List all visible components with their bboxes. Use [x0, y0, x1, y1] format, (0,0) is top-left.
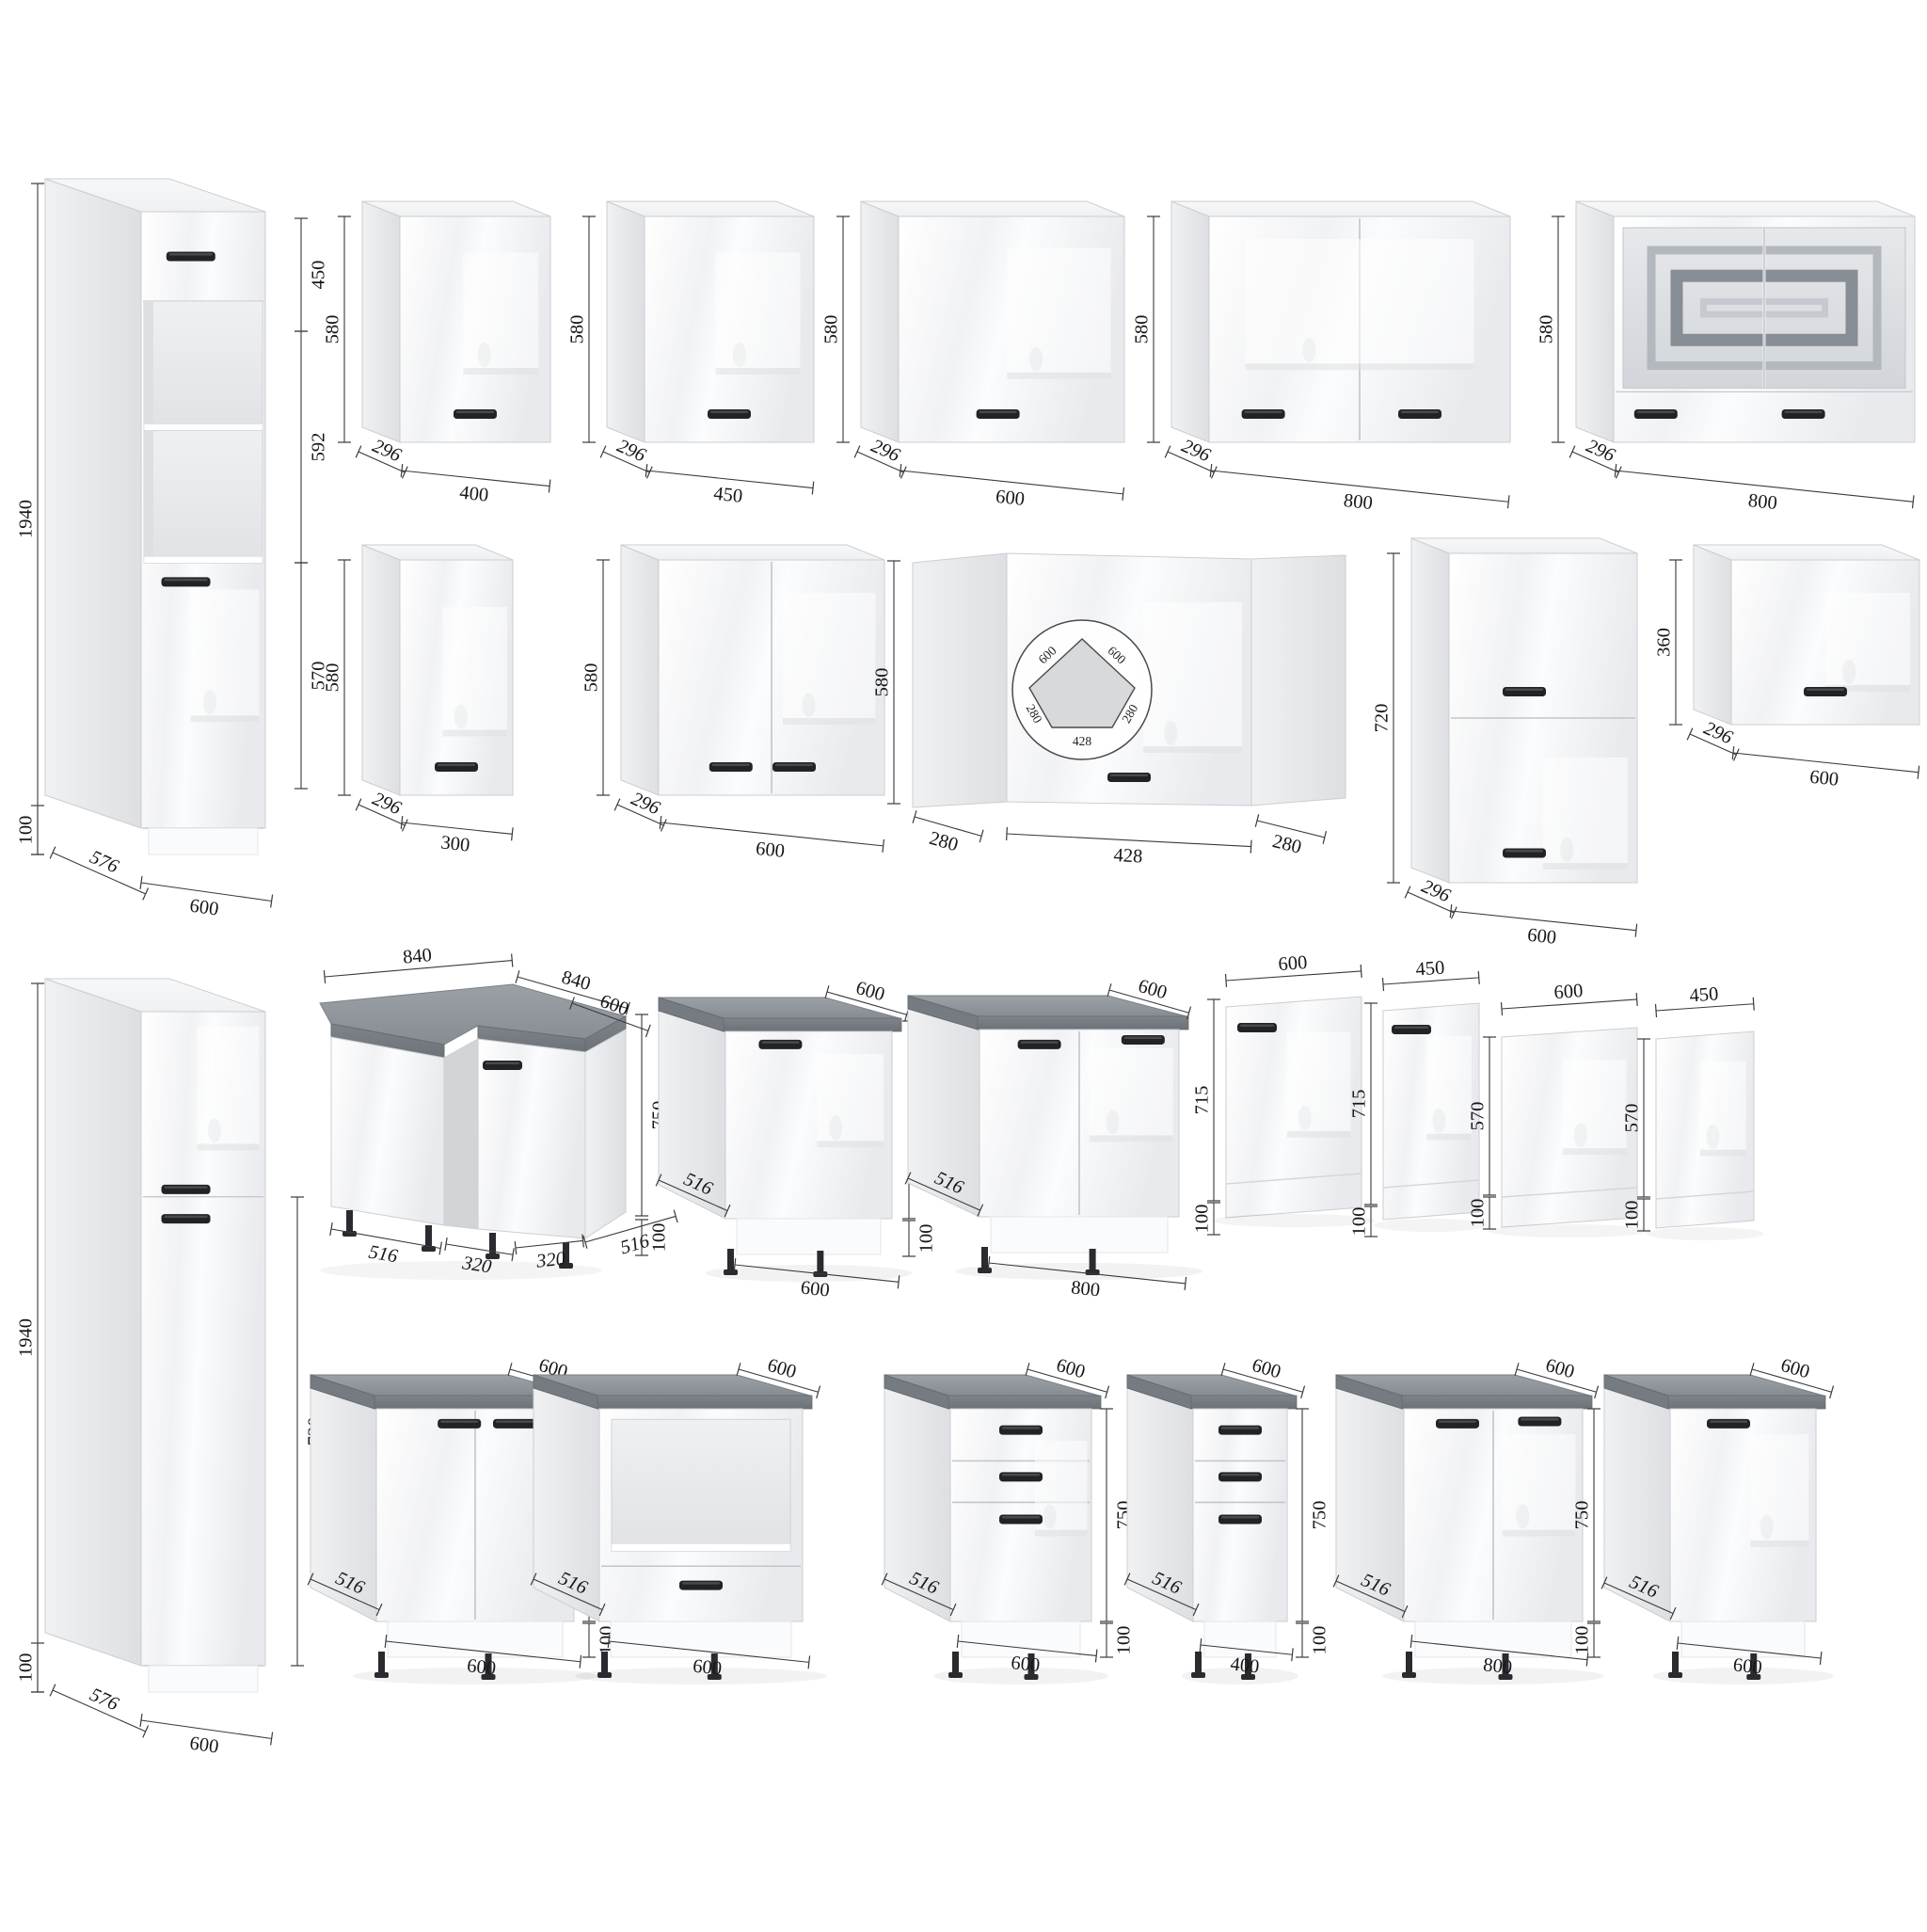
dimension: 576 [50, 1669, 154, 1737]
base-cabinet-800-two-door: 600516800 [1333, 1348, 1604, 1686]
open-niche [144, 301, 263, 431]
dimension: 580 [323, 560, 351, 795]
window-reflection [1035, 1441, 1088, 1537]
adjustable-leg [346, 1210, 353, 1233]
dimension-label: 570 [1622, 1104, 1643, 1133]
plan-dimension-label: 428 [1073, 734, 1092, 748]
top-face [1576, 201, 1915, 216]
dimension: 600 [1730, 746, 1919, 799]
dimension-label: 580 [1132, 315, 1153, 344]
adjustable-leg [425, 1225, 432, 1248]
dimension-label: 100 [1114, 1626, 1135, 1655]
side-face [1251, 555, 1346, 806]
dimension-label: 600 [466, 1655, 497, 1679]
dimension-label: 592 [309, 433, 329, 462]
countertop-edge [978, 1016, 1188, 1030]
wall-cabinet-600-two-door: 580296600 [581, 545, 884, 872]
plinth [1681, 1621, 1805, 1657]
wall-cabinet-600: 580296600 [821, 201, 1124, 520]
top-face [1694, 545, 1919, 560]
dimension-label: 100 [1572, 1626, 1593, 1655]
side-face [45, 179, 141, 828]
dimension: 280 [1250, 814, 1326, 863]
side-face [861, 201, 899, 442]
dimension-label: 516 [618, 1231, 652, 1259]
dimension-label: 400 [458, 483, 489, 506]
dimension: 450 [295, 218, 329, 331]
dimension-label: 715 [1192, 1086, 1213, 1115]
dimension-label: 715 [1349, 1090, 1370, 1119]
cabinet-catalog-diagram: 1940450592570100576600580296400580296450… [0, 0, 1927, 1927]
dimension-label: 600 [995, 487, 1026, 510]
dimension-label: 580 [821, 315, 842, 344]
window-reflection [1245, 239, 1473, 370]
window-reflection [1287, 1032, 1351, 1138]
dimension: 750 [1296, 1409, 1330, 1621]
window-reflection [1143, 602, 1242, 753]
dimension: 600 [658, 816, 884, 872]
wall-cabinet-450: 580296450 [567, 201, 814, 514]
dimension: 592 [295, 331, 329, 563]
window-reflection [1007, 248, 1110, 379]
dimension-label: 576 [87, 847, 122, 878]
open-niche [144, 431, 263, 564]
dimension-label: 450 [309, 261, 329, 290]
side-face [913, 553, 1007, 807]
dimension-label: 600 [188, 1733, 220, 1758]
tall-oven-housing-600: 1940450592570100576600 [16, 179, 329, 927]
dimension-label: 1940 [16, 1318, 37, 1357]
dimension-label: 600 [800, 1278, 831, 1301]
dimension-label: 428 [1113, 845, 1143, 868]
window-reflection [1543, 758, 1628, 870]
side-face [1576, 201, 1614, 442]
dimension-label: 450 [712, 484, 743, 507]
plinth [991, 1217, 1168, 1253]
dimension: 576 [50, 832, 154, 900]
dimension-label: 800 [1343, 490, 1374, 514]
dimension: 840 [323, 938, 513, 983]
dimension: 800 [1208, 464, 1509, 528]
dimension: 400 [399, 464, 550, 512]
adjustable-leg [1090, 1249, 1096, 1271]
dimension-label: 600 [1526, 925, 1557, 949]
base-cabinet-600-one-door-r3: 600516600750100 [656, 970, 937, 1308]
wall-cabinet-300: 580296300 [323, 545, 513, 860]
dimension-label: 840 [402, 945, 433, 968]
dimension: 600 [1224, 949, 1362, 987]
countertop-edge [948, 1396, 1101, 1409]
plinth [149, 828, 258, 854]
dimension-label: 580 [323, 663, 343, 693]
dimension-label: 100 [16, 816, 37, 845]
dimension-label: 300 [439, 833, 470, 856]
dimension-label: 600 [188, 896, 220, 920]
dimension-label: 750 [1572, 1501, 1593, 1530]
wall-cabinet-600-360: 360296600 [1654, 545, 1919, 799]
window-reflection [783, 593, 875, 725]
window-reflection [1750, 1434, 1808, 1547]
dimension-label: 580 [567, 315, 588, 344]
dimension: 600 [137, 1714, 273, 1764]
plan-view-inset: 600600280428280 [1012, 620, 1152, 759]
dimension-label: 280 [1270, 831, 1303, 858]
top-face [607, 201, 814, 216]
dimension: 100 [1296, 1623, 1330, 1657]
dimension: 1940 [16, 983, 44, 1692]
wall-cabinet-600-720: 720296600 [1372, 538, 1637, 957]
dimension: 280 [907, 810, 983, 861]
window-reflection [817, 1054, 884, 1148]
dimension: 100 [902, 1221, 937, 1256]
adjustable-leg [817, 1251, 823, 1273]
plinth [737, 1219, 881, 1254]
dimension: 428 [1006, 827, 1251, 873]
dimension: 450 [1381, 955, 1479, 991]
countertop-edge [1402, 1396, 1592, 1409]
side-face [1171, 201, 1209, 442]
dimension-label: 100 [916, 1224, 937, 1253]
base-cabinet-600-one-door: 600516600750100 [1572, 1348, 1839, 1685]
top-face [861, 201, 1124, 216]
side-face [1411, 538, 1449, 883]
dimension-label: 600 [692, 1656, 723, 1680]
base-cabinet-600-oven-housing: 600516600 [531, 1348, 827, 1688]
tall-fridge-housing-600: 1940720100576600 [16, 979, 326, 1764]
dimension-label: 580 [581, 663, 602, 693]
window-reflection [716, 252, 801, 375]
dimension-label: 720 [1372, 704, 1393, 733]
adjustable-leg [952, 1652, 959, 1674]
dimension-label: 1940 [16, 500, 37, 538]
dimension-label: 600 [1278, 952, 1308, 975]
side-face [585, 1030, 626, 1238]
front-face [331, 1037, 444, 1225]
top-face [1171, 201, 1510, 216]
adjustable-leg [727, 1249, 734, 1271]
window-reflection [197, 1027, 259, 1151]
side-face [362, 545, 400, 795]
dimension-label: 450 [1689, 983, 1719, 1006]
window-reflection [1426, 1036, 1472, 1141]
dimension: 600 [137, 876, 273, 927]
dimension-label: 600 [755, 838, 786, 862]
plinth [1415, 1621, 1571, 1657]
adjustable-leg [1406, 1652, 1412, 1674]
dimension: 100 [1572, 1623, 1601, 1657]
wall-cabinet-800-two-door: 580296800 [1132, 201, 1510, 528]
plinth [611, 1621, 791, 1657]
dimension: 580 [323, 216, 351, 442]
top-face [621, 545, 884, 560]
side-panel-450-715: 450715100 [1349, 955, 1489, 1237]
window-reflection [1563, 1060, 1627, 1155]
side-face [1694, 545, 1731, 725]
dimension: 100 [1622, 1199, 1650, 1231]
dimension-label: 400 [1230, 1653, 1261, 1677]
window-reflection [463, 252, 538, 375]
dimension-label: 100 [1349, 1207, 1370, 1237]
dimension: 100 [1468, 1197, 1496, 1229]
dimension: 580 [581, 560, 610, 795]
wall-cabinet-400: 580296400 [323, 201, 550, 512]
dimension-label: 600 [1808, 767, 1839, 790]
dimension-label: 450 [1415, 957, 1445, 980]
dimension: 600 [1500, 977, 1637, 1015]
dimension: 1940 [16, 184, 44, 854]
plinth [388, 1621, 563, 1657]
dimension-label: 580 [1537, 315, 1557, 344]
adjustable-leg [1195, 1652, 1202, 1674]
side-panel-600-715: 600715100 [1192, 949, 1376, 1235]
dimension: 580 [1132, 216, 1160, 442]
dimension-label: 100 [1192, 1205, 1213, 1234]
plinth [149, 1666, 258, 1692]
window-reflection [443, 607, 507, 737]
dimension-label: 570 [1468, 1102, 1489, 1131]
dimension-label: 360 [1654, 628, 1675, 657]
dimension: 800 [1613, 464, 1914, 528]
base-cabinet-600-drawers: 600516600750100 [882, 1348, 1135, 1685]
base-corner-cabinet-840: 840840600750100516320320516 [320, 938, 683, 1281]
oven-niche [612, 1419, 790, 1551]
adjustable-leg [378, 1652, 385, 1674]
dimension: 100 [1100, 1623, 1135, 1657]
base-cabinet-400-drawers: 600516400750100 [1124, 1348, 1330, 1685]
dimension: 100 [16, 1643, 44, 1692]
countertop-edge [597, 1396, 812, 1409]
window-reflection [1700, 1062, 1746, 1157]
dimension: 720 [1372, 553, 1400, 883]
dimension-label: 576 [87, 1685, 122, 1716]
dimension: 100 [16, 806, 44, 854]
top-face [1411, 538, 1637, 553]
side-panel-450-570: 450570100 [1622, 982, 1764, 1240]
dimension: 600 [1448, 904, 1637, 957]
dimension-label: 320 [534, 1249, 566, 1272]
dimension-label: 100 [1622, 1201, 1643, 1230]
window-reflection [1503, 1434, 1576, 1536]
dimension-label: 600 [1732, 1654, 1763, 1678]
dimension: 715 [1192, 999, 1220, 1201]
dimension-label: 100 [1468, 1199, 1489, 1228]
adjustable-leg [981, 1247, 988, 1269]
dimension: 300 [399, 816, 513, 860]
side-face [362, 201, 400, 442]
dimension-label: 600 [1010, 1653, 1041, 1676]
adjustable-leg [601, 1652, 608, 1674]
base-cabinet-800-two-door-r3: 600516800 [905, 968, 1202, 1310]
dimension-label: 800 [1747, 490, 1778, 514]
dimension-label: 100 [649, 1223, 670, 1253]
dimension-label: 800 [1482, 1654, 1513, 1678]
corner-recess [444, 1039, 478, 1229]
adjustable-leg [1672, 1652, 1679, 1674]
dimension: 580 [1537, 216, 1565, 442]
dimension: 600 [898, 464, 1123, 520]
countertop-edge [724, 1018, 901, 1031]
side-face [621, 545, 659, 795]
wall-cabinet-800-glass: 580296800 [1537, 201, 1915, 528]
window-reflection [1090, 1048, 1173, 1142]
dimension: 580 [567, 216, 596, 442]
dimension-label: 750 [1310, 1501, 1330, 1530]
countertop-edge [1191, 1396, 1297, 1409]
dimension-label: 580 [872, 668, 893, 697]
countertop-edge [1668, 1396, 1825, 1409]
window-reflection [1825, 593, 1910, 692]
dimension-label: 800 [1070, 1277, 1101, 1301]
dimension: 450 [1654, 982, 1754, 1017]
side-face [607, 201, 645, 442]
window-reflection [191, 590, 260, 723]
side-face [45, 979, 141, 1666]
dimension-label: 100 [16, 1653, 37, 1683]
dimension: 450 [644, 464, 814, 514]
dimension-label: 100 [1310, 1626, 1330, 1655]
catalog-canvas: 1940450592570100576600580296400580296450… [0, 0, 1927, 1927]
wall-corner-cabinet: 600600280428280580280428280 [872, 553, 1346, 873]
dimension-label: 580 [323, 315, 343, 344]
dimension: 360 [1654, 560, 1682, 725]
dimension-label: 280 [927, 828, 961, 856]
dimension: 580 [821, 216, 850, 442]
dimension-label: 600 [1553, 981, 1584, 1003]
